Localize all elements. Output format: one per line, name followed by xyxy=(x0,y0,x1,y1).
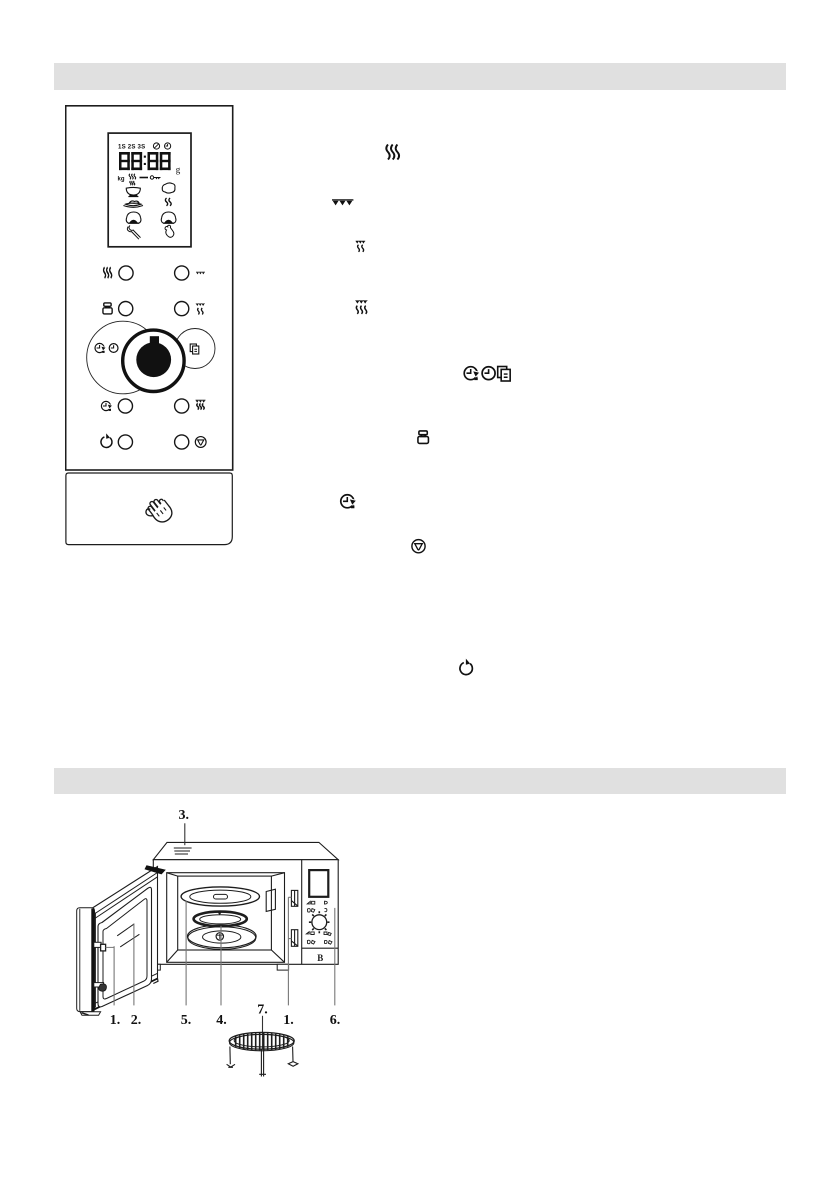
svg-text:4.: 4. xyxy=(216,1013,227,1028)
svg-text:2.: 2. xyxy=(131,1013,142,1028)
svg-text:6.: 6. xyxy=(330,1013,341,1028)
svg-text:5.: 5. xyxy=(181,1013,192,1028)
svg-text:1S 2S 3S: 1S 2S 3S xyxy=(118,144,145,151)
svg-text:kg: kg xyxy=(118,177,125,183)
svg-text:g: g xyxy=(176,165,181,175)
svg-text:B: B xyxy=(317,953,323,963)
svg-text:1.: 1. xyxy=(110,1013,121,1028)
svg-text:7.: 7. xyxy=(257,1003,268,1018)
svg-text:1.: 1. xyxy=(283,1013,294,1028)
svg-text:3.: 3. xyxy=(179,808,190,823)
